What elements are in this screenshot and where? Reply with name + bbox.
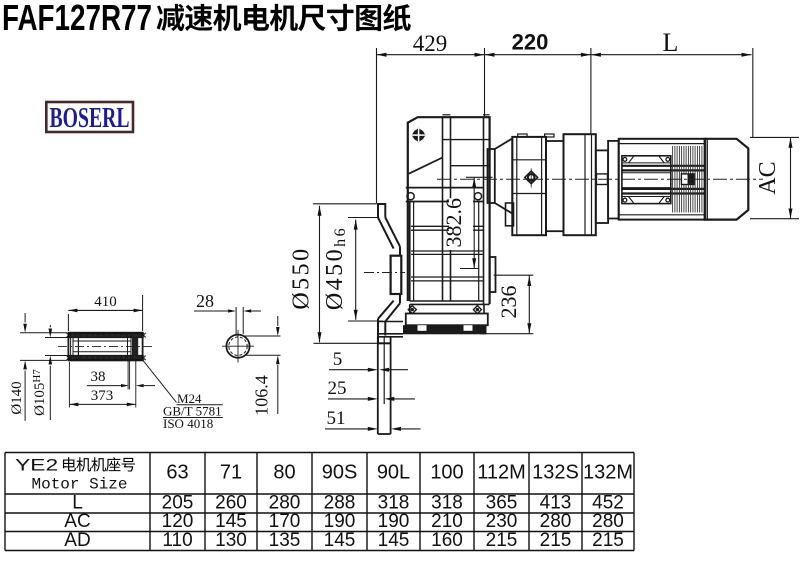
svg-text:28: 28 [196, 291, 214, 311]
svg-text:38: 38 [91, 369, 106, 385]
svg-text:L: L [663, 28, 679, 57]
svg-text:280: 280 [540, 511, 572, 532]
svg-text:Ø550: Ø550 [289, 246, 315, 309]
svg-text:190: 190 [378, 511, 410, 532]
svg-text:145: 145 [215, 511, 247, 532]
svg-text:71: 71 [220, 462, 242, 484]
svg-text:132M: 132M [583, 462, 633, 484]
svg-text:220: 220 [512, 30, 549, 55]
svg-text:373: 373 [91, 388, 114, 404]
svg-text:80: 80 [273, 462, 295, 484]
svg-text:170: 170 [269, 511, 301, 532]
svg-text:429: 429 [413, 31, 448, 56]
svg-text:382.6: 382.6 [441, 198, 466, 248]
svg-text:160: 160 [431, 530, 463, 551]
svg-text:120: 120 [162, 511, 194, 532]
svg-text:AD: AD [64, 530, 90, 551]
svg-text:190: 190 [324, 511, 356, 532]
svg-text:215: 215 [540, 530, 572, 551]
svg-text:ISO 4018: ISO 4018 [163, 416, 213, 431]
svg-text:130: 130 [215, 530, 247, 551]
svg-text:YE2: YE2 [15, 457, 58, 475]
svg-text:280: 280 [592, 511, 624, 532]
svg-text:5: 5 [333, 349, 343, 370]
svg-text:90S: 90S [322, 462, 358, 484]
svg-text:51: 51 [327, 408, 346, 429]
svg-text:AC: AC [755, 161, 781, 194]
svg-text:FAF127R77: FAF127R77 [2, 0, 152, 38]
svg-text:110: 110 [162, 530, 192, 551]
svg-text:BOSERL: BOSERL [50, 103, 130, 134]
svg-text:100: 100 [430, 462, 463, 484]
svg-text:135: 135 [269, 530, 301, 551]
svg-text:215: 215 [592, 530, 624, 551]
svg-text:25: 25 [328, 378, 347, 399]
svg-text:112M: 112M [477, 462, 526, 484]
svg-text:145: 145 [324, 530, 356, 551]
svg-text:230: 230 [486, 511, 518, 532]
svg-text:Motor Size: Motor Size [31, 476, 127, 494]
svg-text:AC: AC [64, 511, 90, 532]
svg-text:410: 410 [94, 294, 117, 310]
svg-text:145: 145 [378, 530, 410, 551]
svg-text:132S: 132S [532, 462, 579, 484]
svg-text:210: 210 [431, 511, 463, 532]
svg-text:90L: 90L [377, 462, 410, 484]
svg-text:106.4: 106.4 [252, 375, 272, 416]
svg-text:236: 236 [496, 286, 521, 319]
svg-text:Ø140: Ø140 [9, 381, 25, 414]
svg-text:215: 215 [486, 530, 518, 551]
svg-text:63: 63 [166, 462, 188, 484]
